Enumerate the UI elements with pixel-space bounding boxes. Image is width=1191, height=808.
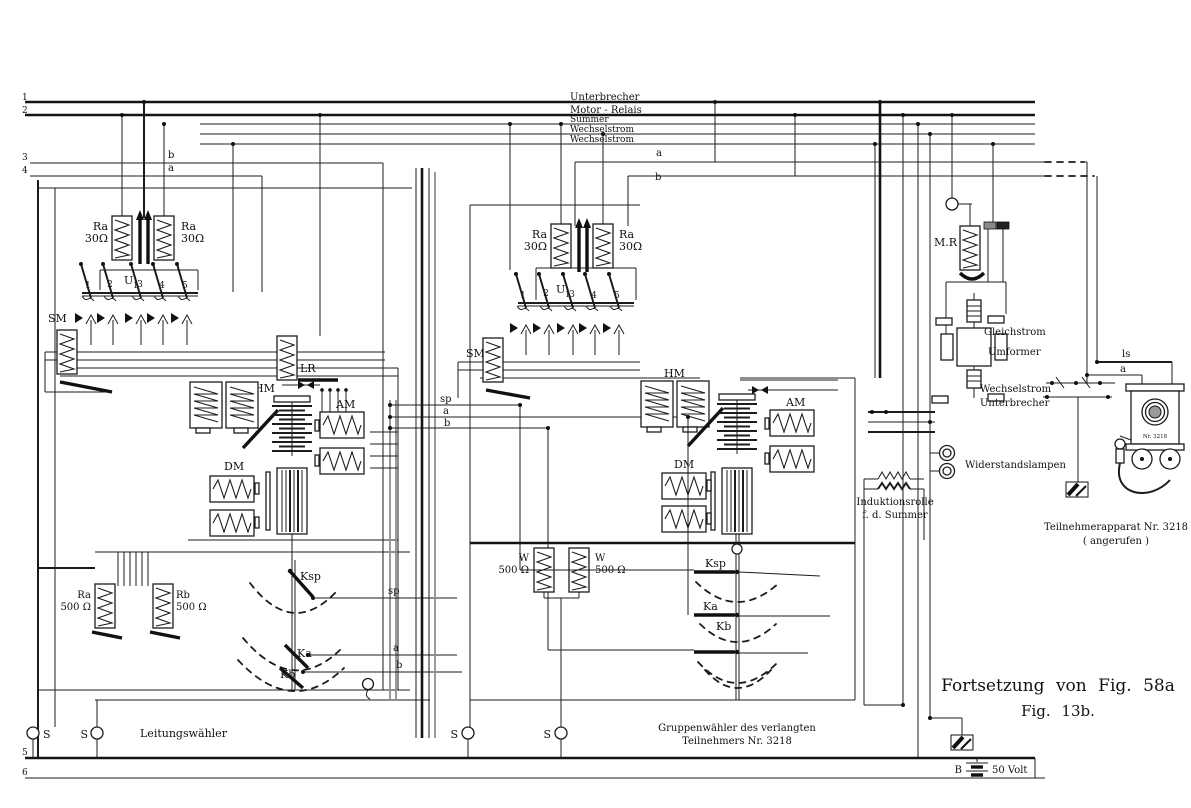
lw-terminals: S S Leitungswähler bbox=[27, 700, 228, 758]
lw-contact-5: 5 bbox=[182, 281, 188, 291]
power-umformer: Gleichstrom Umformer Wechselstrom Unterb… bbox=[932, 293, 1052, 409]
power-mr: M.R bbox=[934, 198, 1009, 279]
bus-number-1: 1 bbox=[22, 93, 28, 103]
lw-ra500-value: 500 Ω bbox=[60, 602, 91, 613]
lw-caption: Leitungswähler bbox=[140, 727, 228, 740]
lw-ra2-value: 30Ω bbox=[181, 232, 204, 245]
link-a-tag: a bbox=[443, 406, 449, 417]
gw-wiper-stack bbox=[717, 394, 757, 454]
figure-caption-line2: Fig. 13b. bbox=[1021, 702, 1095, 720]
mid-a-tag: a bbox=[656, 148, 662, 159]
resistance-lamp-1 bbox=[940, 446, 955, 461]
lw-rb500-name: Rb bbox=[176, 590, 190, 601]
gw-contact-4: 4 bbox=[591, 291, 597, 301]
rail-number-5: 5 bbox=[22, 748, 28, 758]
gw-s-terminal-1 bbox=[462, 727, 474, 739]
gw-s-label-2: S bbox=[543, 728, 551, 741]
lw-plug-jack bbox=[363, 679, 374, 690]
circuit-diagram: 1 2 Unterbrecher Motor - Relais Summer W… bbox=[0, 0, 1191, 808]
gw-ra1-coil bbox=[551, 224, 571, 268]
gw-contact-3: 3 bbox=[569, 290, 575, 300]
section-partition bbox=[416, 168, 435, 738]
gw-selector bbox=[711, 394, 757, 700]
lw-am-coil-2 bbox=[320, 448, 364, 474]
rail-tag-a: a bbox=[168, 163, 174, 174]
gw-dm-label: DM bbox=[674, 458, 694, 471]
lw-dm-coil-1 bbox=[210, 476, 254, 502]
gw-w2-name: W bbox=[595, 553, 606, 564]
mid-b-tag: b bbox=[655, 172, 661, 183]
gw-ra-coils: Ra 30Ω Ra 30Ω bbox=[524, 218, 642, 272]
subscriber: ls a Nr. 3218 bbox=[1043, 162, 1188, 547]
gw-hm-coil-2 bbox=[677, 381, 709, 427]
rail-number-4: 4 bbox=[22, 166, 28, 176]
lw-b-tag: b bbox=[396, 660, 402, 671]
lw-selector bbox=[266, 396, 312, 690]
lw-ra500-coil bbox=[95, 584, 115, 628]
lw-contact-2: 2 bbox=[107, 280, 113, 290]
lw-dm: DM bbox=[210, 460, 259, 536]
gw-dm: DM bbox=[662, 458, 711, 532]
resistance-lamp-2 bbox=[940, 464, 955, 479]
power-induktion-label-2: f. d. Summer bbox=[862, 510, 928, 521]
power-mr-label: M.R bbox=[934, 236, 958, 249]
battery-voltage: 50 Volt bbox=[992, 765, 1027, 776]
ground-block-subscriber bbox=[1066, 482, 1088, 497]
lw-sm-label: SM bbox=[48, 312, 67, 325]
gw-sm: SM bbox=[466, 338, 530, 398]
lw-contact-4: 4 bbox=[159, 281, 165, 291]
lw-rb500-value: 500 Ω bbox=[176, 602, 207, 613]
gw-s-label-1: S bbox=[450, 728, 458, 741]
power-gleichstrom-label: Gleichstrom bbox=[984, 327, 1046, 338]
rail-number-6: 6 bbox=[22, 768, 28, 778]
lw-s-label-2: S bbox=[80, 728, 88, 741]
lw-wipers: Ksp sp Ka a Kb b bbox=[238, 569, 462, 699]
lw-ra1-value: 30Ω bbox=[85, 232, 108, 245]
lw-ra1-coil bbox=[112, 216, 132, 260]
lw-u-label: U bbox=[124, 274, 133, 287]
lw-am-label: AM bbox=[335, 398, 355, 411]
gw-ka-label: Ka bbox=[703, 600, 718, 613]
gw-u-bank: 1 2 U 1 3 4 5 bbox=[510, 272, 634, 355]
lw-s-terminal-1 bbox=[27, 727, 39, 739]
lw-sp-tag: sp bbox=[388, 586, 400, 597]
ground-block-bottom bbox=[951, 735, 973, 750]
subscriber-caption-2: ( angerufen ) bbox=[1083, 536, 1149, 547]
power-wechselstrom-label: Wechselstrom bbox=[980, 384, 1052, 395]
lw-hm-coil-1 bbox=[190, 382, 222, 428]
telephone-handset bbox=[1115, 439, 1125, 449]
power-lamps: Widerstandslampen bbox=[930, 446, 1066, 479]
power-umformer-label: Umformer bbox=[988, 347, 1041, 358]
gw-am-coil-1 bbox=[770, 410, 814, 436]
gw-caption-2: Teilnehmers Nr. 3218 bbox=[682, 736, 792, 747]
gw-ksp-label: Ksp bbox=[705, 557, 726, 570]
lw-contact-1: 1 bbox=[85, 281, 91, 291]
lw-s-label-1: S bbox=[43, 728, 51, 741]
lw-r500: Ra 500 Ω Rb 500 Ω bbox=[38, 552, 207, 638]
power-lampen-label: Widerstandslampen bbox=[965, 460, 1066, 471]
gw-drive-cylinder bbox=[722, 468, 752, 534]
lw-rb500-coil bbox=[153, 584, 173, 628]
power-induction-coil: Induktionsrolle f. d. Summer bbox=[856, 472, 933, 705]
power-induktion-label-1: Induktionsrolle bbox=[856, 497, 933, 508]
gw-sm-coil bbox=[483, 338, 503, 382]
gw-ra2-coil bbox=[593, 224, 613, 268]
subscriber-caption-1: Teilnehmerapparat Nr. 3218 bbox=[1044, 522, 1188, 533]
link-lines: sp a b bbox=[388, 394, 688, 650]
battery: B 50 Volt bbox=[955, 758, 1028, 776]
sub-a-tag: a bbox=[1120, 364, 1126, 375]
lw-dm-coil-2 bbox=[210, 510, 254, 536]
figure-caption-line1: Fortsetzung von Fig. 58a bbox=[941, 676, 1175, 696]
lw-a-tag: a bbox=[393, 643, 399, 654]
telephone-apparatus: Nr. 3218 bbox=[1115, 384, 1184, 493]
gw-dm-coil-2 bbox=[662, 506, 706, 532]
power-mr-coil bbox=[960, 226, 980, 270]
gw-am-label: AM bbox=[785, 396, 805, 409]
lw-sm-coil bbox=[57, 330, 77, 374]
lw-hm-coil-2 bbox=[226, 382, 258, 428]
power-wires bbox=[880, 102, 1006, 758]
gw-terminals: S S Gruppenwähler des verlangten Teilneh… bbox=[450, 700, 816, 758]
lw-lr-label: LR bbox=[300, 362, 316, 375]
bus-lines: 1 2 Unterbrecher Motor - Relais Summer W… bbox=[22, 92, 1035, 145]
link-b-tag: b bbox=[444, 418, 450, 429]
lw-ra500-name: Ra bbox=[77, 590, 91, 601]
gw-contact-5: 5 bbox=[614, 291, 620, 301]
gw-caption-1: Gruppenwähler des verlangten bbox=[658, 723, 816, 734]
gw-contact-2: 2 bbox=[543, 289, 549, 299]
bus-label-summer: Summer bbox=[570, 115, 609, 125]
gw-s-terminal-2 bbox=[555, 727, 567, 739]
power-unterbrecher-label: Unterbrecher bbox=[980, 398, 1050, 409]
lw-u-bank: 1 2 U 1 3 4 5 bbox=[75, 262, 198, 345]
link-sp-tag: sp bbox=[440, 394, 452, 405]
bottom-rails: 5 6 bbox=[22, 748, 1045, 778]
gw-u-label: U bbox=[556, 283, 565, 296]
telephone-plate: Nr. 3218 bbox=[1143, 434, 1168, 440]
rail-number-3: 3 bbox=[22, 153, 28, 163]
gw-ra2-value: 30Ω bbox=[619, 240, 642, 253]
power-interrupter-contacts bbox=[868, 410, 935, 432]
lw-ra-coils: Ra 30Ω Ra 30Ω bbox=[85, 210, 204, 264]
rail-tag-b: b bbox=[168, 150, 174, 161]
gw-am: AM bbox=[765, 396, 814, 472]
sub-ls-tag: ls bbox=[1122, 349, 1130, 360]
gw-sm-label: SM bbox=[466, 347, 485, 360]
lw-am-coil-1 bbox=[320, 412, 364, 438]
lw-drive-cylinder bbox=[277, 468, 307, 534]
lw-lr-coil bbox=[277, 336, 297, 380]
gw-w-coils: W 500 Ω W 500 Ω bbox=[498, 548, 625, 700]
bus-label-wechselstrom-2: Wechselstrom bbox=[570, 135, 634, 145]
lw-ra2-coil bbox=[154, 216, 174, 260]
gw-w1-name: W bbox=[519, 553, 530, 564]
gw-ra1-value: 30Ω bbox=[524, 240, 547, 253]
lw-wiper-stack bbox=[272, 396, 312, 456]
gw-dm-coil-1 bbox=[662, 473, 706, 499]
bus-label-unterbrecher: Unterbrecher bbox=[570, 92, 640, 103]
gw-contact-1: 1 bbox=[520, 291, 526, 301]
gw-hm-coil-1 bbox=[641, 381, 673, 427]
lw-ka-label: Ka bbox=[297, 647, 312, 660]
lw-ksp-label: Ksp bbox=[300, 570, 321, 583]
gw-am-coil-2 bbox=[770, 446, 814, 472]
gw-kb-label: Kb bbox=[716, 620, 731, 633]
lw-s-terminal-2 bbox=[91, 727, 103, 739]
bus-number-2: 2 bbox=[22, 106, 28, 116]
gw-hm-label: HM bbox=[664, 367, 685, 380]
lw-dm-label: DM bbox=[224, 460, 244, 473]
battery-label: B bbox=[955, 765, 962, 776]
lw-contact-3: 3 bbox=[137, 280, 143, 290]
